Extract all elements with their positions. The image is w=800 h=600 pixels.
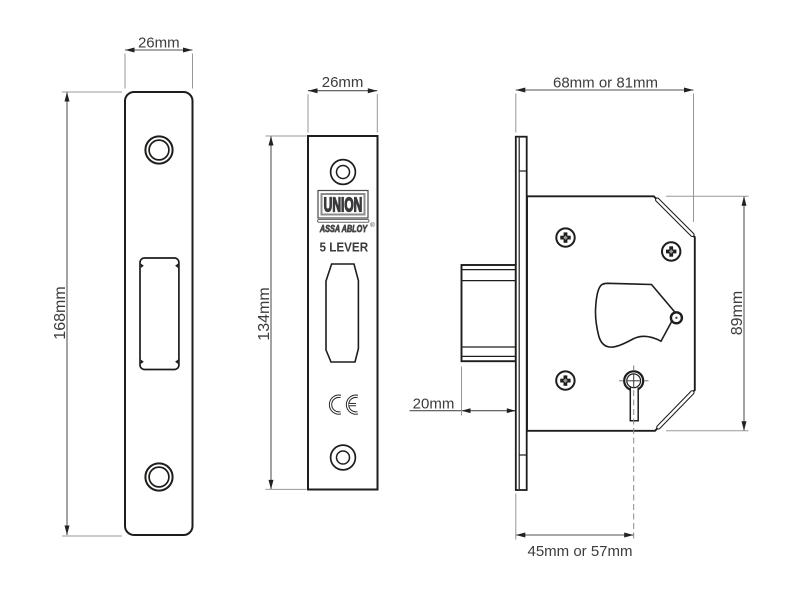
svg-text:26mm: 26mm <box>138 35 180 52</box>
svg-text:ASSA ABLOY: ASSA ABLOY <box>319 223 368 234</box>
svg-text:45mm or 57mm: 45mm or 57mm <box>527 543 632 560</box>
svg-text:UNION: UNION <box>324 195 363 217</box>
svg-text:168mm: 168mm <box>52 286 69 339</box>
svg-text:26mm: 26mm <box>322 74 364 91</box>
svg-text:®: ® <box>370 221 375 229</box>
svg-text:68mm or 81mm: 68mm or 81mm <box>553 75 658 92</box>
svg-text:5 LEVER: 5 LEVER <box>319 240 368 255</box>
svg-text:134mm: 134mm <box>256 287 273 340</box>
svg-text:89mm: 89mm <box>729 291 746 335</box>
svg-text:20mm: 20mm <box>413 395 455 412</box>
